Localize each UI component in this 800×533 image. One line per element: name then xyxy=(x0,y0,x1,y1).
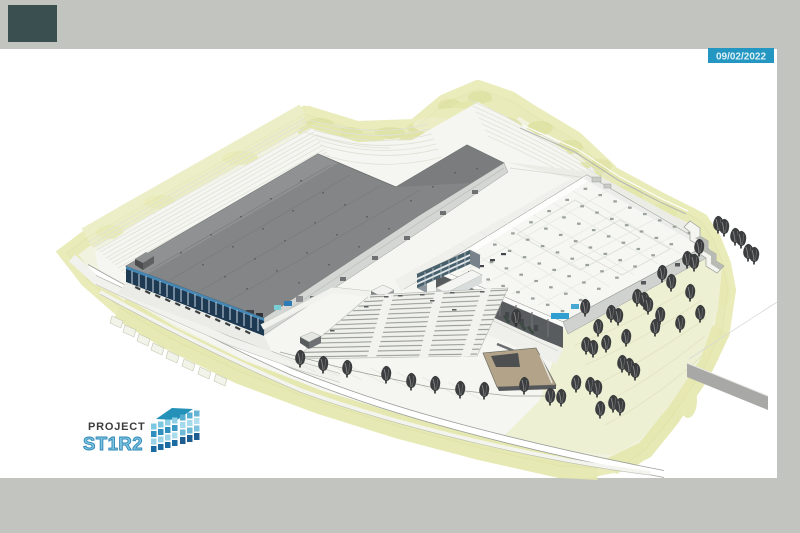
svg-text:ST1R2: ST1R2 xyxy=(83,433,143,454)
svg-text:PROJECT: PROJECT xyxy=(88,421,146,433)
svg-text:09/02/2022: 09/02/2022 xyxy=(716,52,766,63)
